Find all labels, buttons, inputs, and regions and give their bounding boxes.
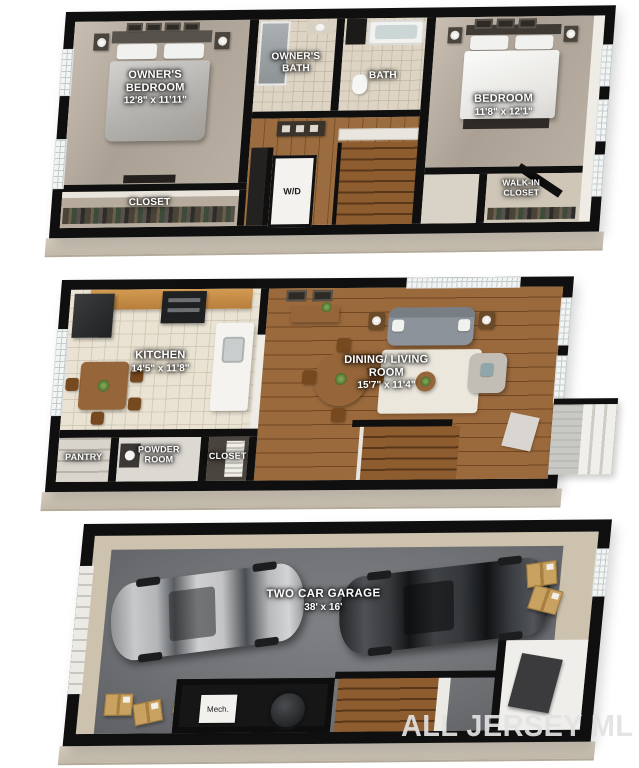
armchair [467, 353, 508, 393]
upper-hallway: W/D [244, 117, 420, 226]
cardboard-box [103, 694, 133, 716]
bed-pillow [470, 36, 509, 50]
chair [65, 378, 79, 391]
sofa [387, 307, 476, 346]
car-wheel [367, 570, 391, 581]
box-label [151, 702, 159, 709]
picture-frame [126, 23, 143, 32]
picture-frame [474, 19, 493, 29]
dresser-drawer [282, 125, 291, 132]
picture-frame [164, 23, 181, 32]
bath-room [338, 18, 427, 111]
chair [336, 338, 351, 352]
room-label-owners-bath: OWNER'S BATH [260, 51, 332, 75]
cardboard-box [526, 560, 557, 588]
bath-vanity [306, 21, 335, 34]
console-plant [321, 302, 332, 312]
mech-room: Mech. [172, 678, 335, 733]
car-wheel [498, 555, 522, 566]
watermark-text: ALL JERSEY ML [401, 708, 633, 744]
room-label-pantry: PANTRY [54, 452, 114, 463]
nightstand [447, 27, 462, 43]
picture-frame [518, 18, 537, 28]
room-label-bath: BATH [345, 70, 421, 82]
room-label-hall-closet: CLOSET [196, 451, 260, 462]
stair-half-wall [338, 128, 419, 141]
room-label-owners-bedroom: OWNER'S BEDROOM 12'8" x 11'11" [110, 68, 200, 106]
floorplan-image: W/D [0, 0, 639, 768]
picture-frame [183, 22, 200, 31]
watermark: ALL JERSEY ML [396, 690, 639, 762]
sofa-pillow [458, 319, 471, 331]
bed-pillow [163, 43, 204, 59]
nightstand [214, 32, 230, 49]
chair [127, 397, 141, 410]
lamp-icon [482, 316, 492, 325]
chair [90, 412, 104, 425]
box-label [546, 563, 553, 570]
nightstand [563, 26, 578, 42]
box-label [551, 592, 560, 599]
main-floor-interior: KITCHEN 14'5" x 11'8" DINING/ LIVING ROO… [56, 287, 563, 483]
car-wheel [136, 576, 160, 587]
chair [330, 408, 345, 422]
picture-frame [312, 290, 333, 301]
picture-frame [145, 23, 162, 32]
room-label-bedroom: BEDROOM 11'8" x 12'1" [438, 92, 568, 118]
lamp-icon [450, 31, 460, 40]
bathtub [367, 20, 425, 46]
closet-hanging-clothes [62, 206, 235, 224]
room-label-walk-in-closet: WALK-IN CLOSET [490, 178, 552, 198]
room-label-dining-living: DINING/ LIVING ROOM 15'7" x 11'4" [336, 353, 436, 391]
bed-pillow [515, 35, 554, 49]
closet-room [60, 190, 240, 228]
tv-console [123, 175, 176, 184]
room-label-closet: CLOSET [109, 197, 189, 209]
dresser-drawer [296, 125, 305, 132]
bed-foot-bench [463, 118, 550, 129]
walk-in-clothes [487, 207, 576, 220]
side-table [368, 312, 385, 330]
main-floor-walls: KITCHEN 14'5" x 11'8" DINING/ LIVING ROO… [45, 276, 574, 492]
armchair-pillow [480, 363, 494, 376]
main-staircase [356, 426, 460, 480]
mech-unit: Mech. [199, 695, 238, 723]
chair [301, 370, 316, 384]
main-floor-plan: KITCHEN 14'5" x 11'8" DINING/ LIVING ROO… [45, 276, 574, 492]
linen-niche [345, 18, 367, 44]
garage-door [68, 566, 94, 694]
window [596, 100, 609, 140]
stoop-steps [578, 404, 618, 474]
bed-pillow [116, 44, 157, 60]
stove [160, 291, 207, 323]
sink-basin [315, 24, 325, 31]
dresser-drawer [310, 125, 319, 132]
lamp-icon [566, 29, 576, 38]
refrigerator [71, 294, 115, 338]
nightstand [93, 33, 109, 50]
picture-frame [286, 290, 307, 301]
lamp-icon [217, 36, 227, 45]
window [593, 549, 609, 595]
side-table [478, 311, 495, 329]
mech-label: Mech. [207, 704, 229, 713]
upper-floor-plan: W/D [49, 5, 616, 238]
room-label-garage: TWO CAR GARAGE 38' x 16' [233, 587, 413, 614]
washer-dryer-closet: W/D [268, 155, 317, 228]
room-label-powder-room: POWDER ROOM [126, 444, 192, 465]
table-plant [97, 380, 110, 392]
picture-frame [496, 19, 515, 29]
window [407, 278, 520, 288]
water-heater [266, 690, 310, 730]
bedroom-landing [421, 174, 480, 224]
stove-grate [168, 298, 200, 302]
room-label-kitchen: KITCHEN 14'5" x 11'8" [95, 349, 225, 375]
upper-staircase [332, 142, 422, 225]
window [600, 45, 613, 85]
console-table [290, 306, 339, 322]
washer-dryer-label: W/D [283, 186, 301, 196]
car-sunroof [169, 586, 217, 642]
rear-stoop [548, 398, 618, 474]
car-wheel [253, 561, 277, 572]
sofa-pillow [392, 320, 405, 332]
stove-grate [167, 308, 199, 312]
sofa-back [389, 307, 476, 318]
main-floor-foundation-edge [40, 489, 562, 512]
upper-floor-walls: W/D [49, 5, 616, 238]
upper-floor-interior: W/D [60, 15, 605, 228]
hall-dresser [276, 121, 325, 137]
box-label [123, 697, 131, 703]
lamp-icon [96, 38, 106, 47]
bathtub-water [375, 25, 418, 40]
lamp-icon [372, 316, 382, 325]
window [592, 155, 605, 195]
